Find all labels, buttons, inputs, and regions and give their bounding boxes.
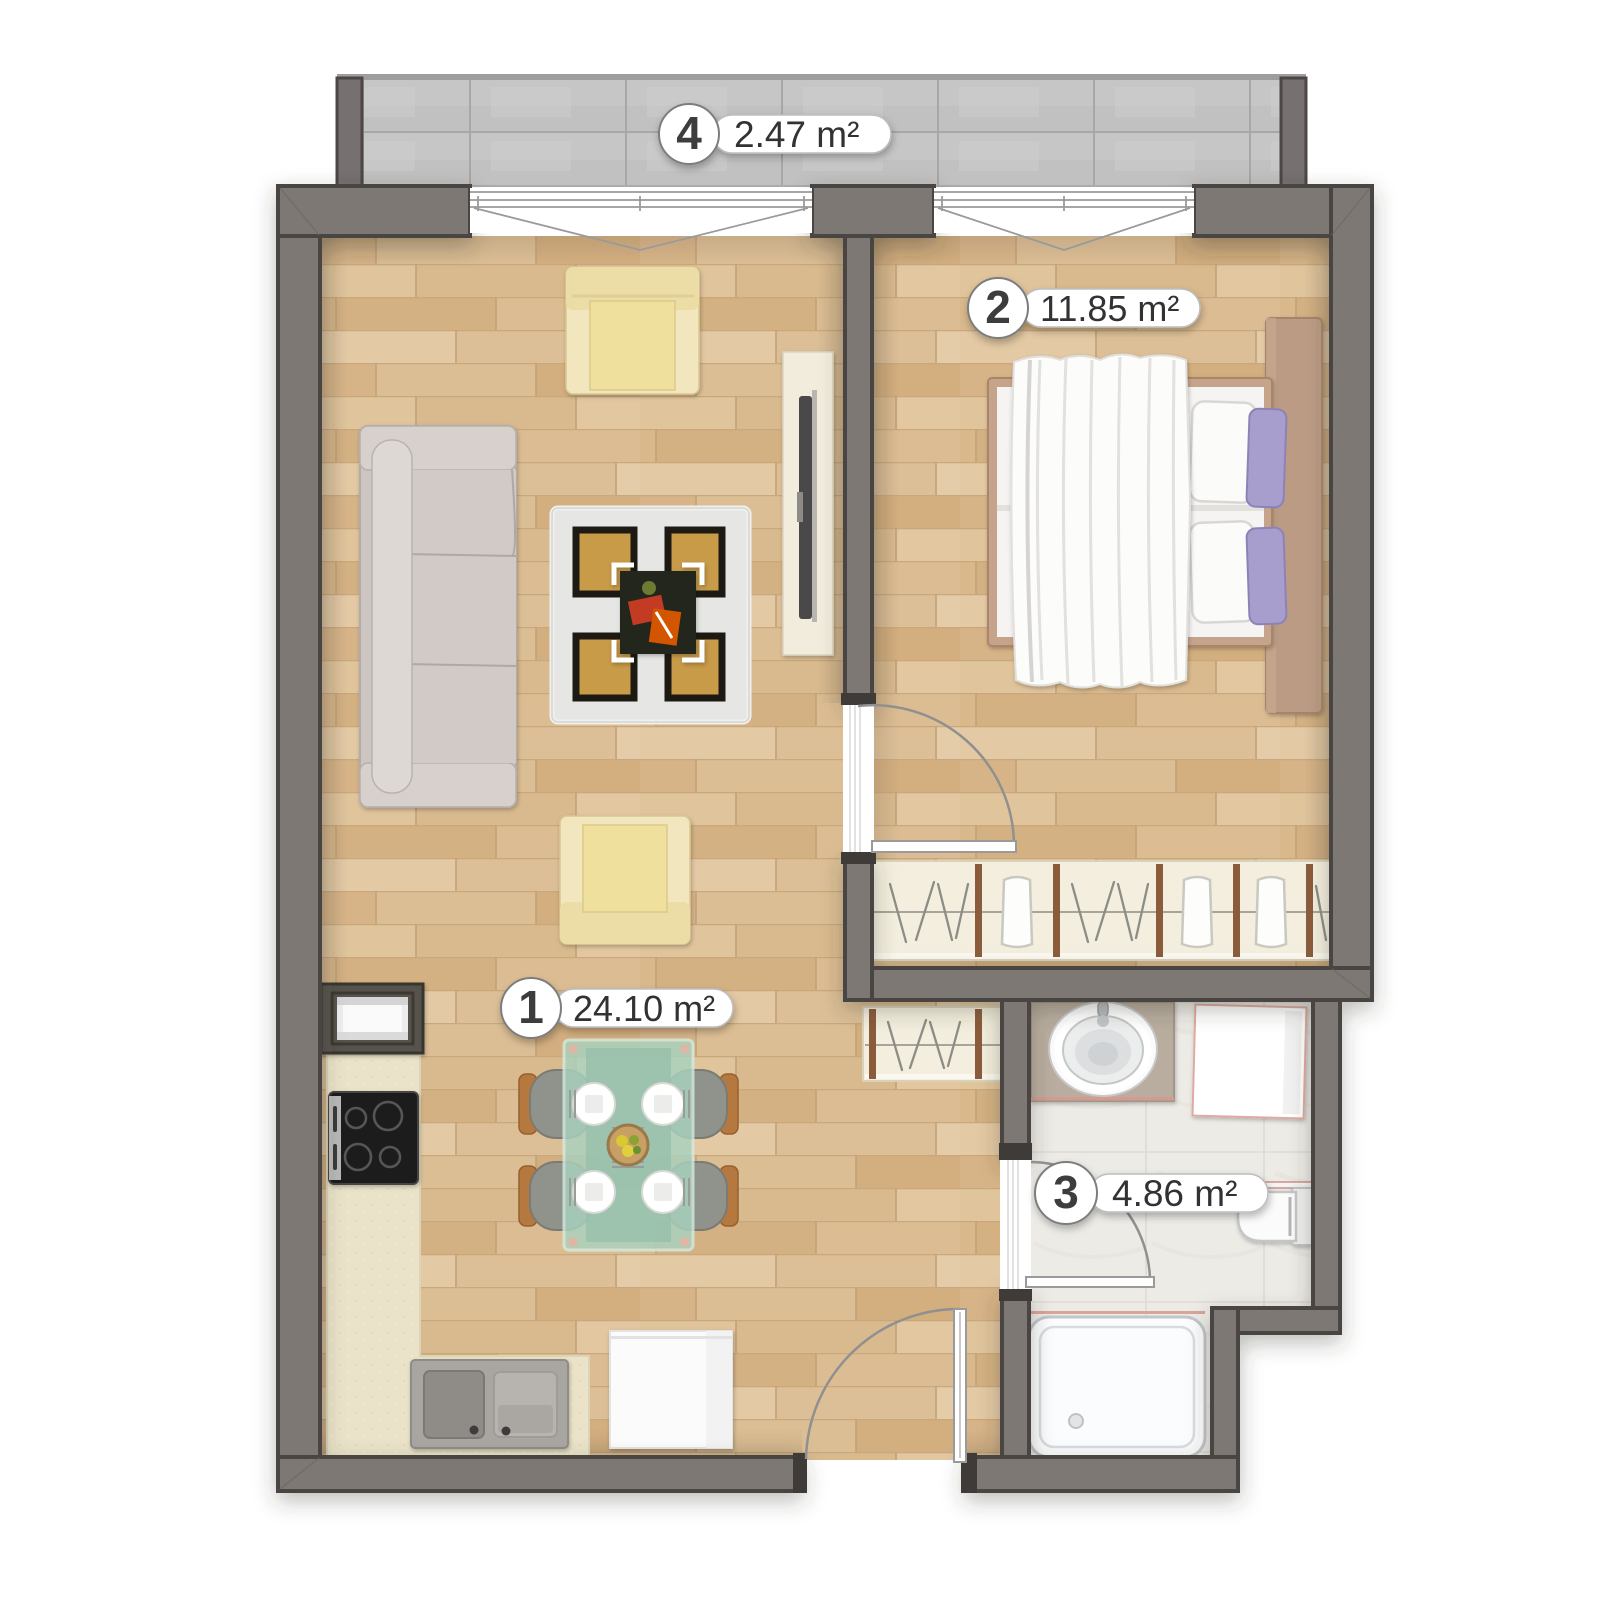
svg-text:24.10 m²: 24.10 m² [573,988,715,1029]
svg-text:1: 1 [518,981,544,1033]
svg-text:4: 4 [676,107,702,159]
svg-text:2.47 m²: 2.47 m² [734,114,859,155]
svg-text:3: 3 [1053,1166,1079,1218]
svg-text:11.85 m²: 11.85 m² [1040,288,1179,329]
svg-text:2: 2 [985,281,1011,333]
svg-text:4.86 m²: 4.86 m² [1112,1173,1237,1214]
